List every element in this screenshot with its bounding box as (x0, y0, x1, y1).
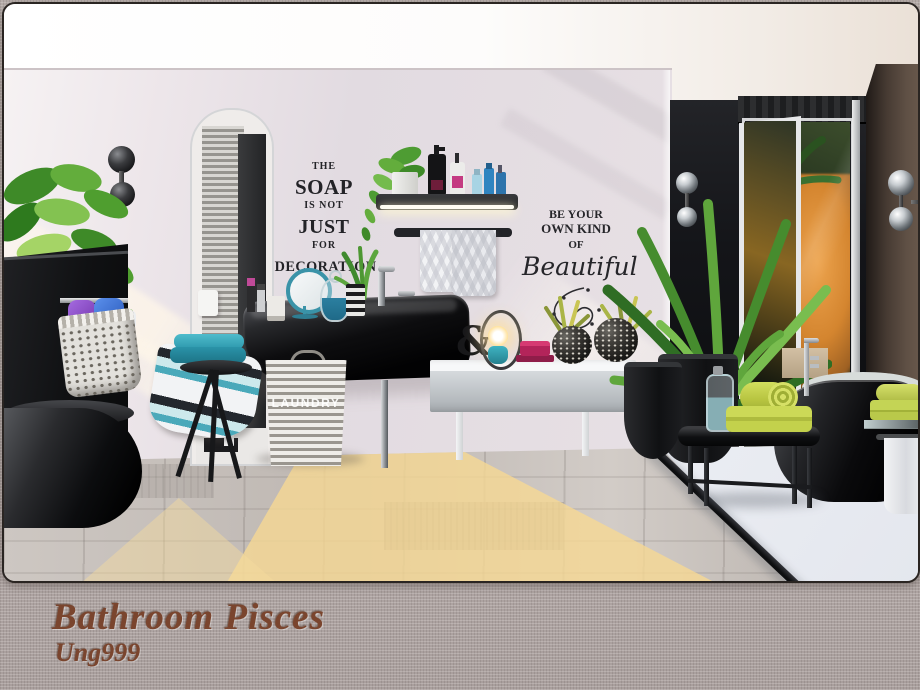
lime-towel-right (870, 400, 920, 420)
black-toilet (4, 408, 142, 528)
cosmetic-bottle (484, 168, 494, 196)
bottle-nozzle (438, 147, 445, 151)
cosmetic-jar (267, 296, 285, 321)
bottle-cap (713, 366, 723, 375)
sink-faucet-handle (398, 291, 415, 296)
bench-leg (792, 444, 797, 504)
pink-soap-tray (516, 355, 554, 362)
tub-faucet-knob (810, 364, 819, 368)
scene-photo: THE SOAP IS NOT JUST FOR DECORATION (2, 2, 920, 583)
spray-bottle (247, 282, 255, 312)
cabinet-leg (582, 412, 589, 456)
laundry-basket-label: LAUNDRY (260, 396, 352, 410)
bench-leg (688, 444, 693, 494)
wall-shelf (376, 194, 518, 210)
lantern-lamp-bulb (487, 325, 509, 347)
caption-author: Ung999 (55, 638, 140, 668)
shelf-led-strip (380, 205, 514, 209)
folded-lime-towel (726, 406, 812, 432)
spray-bottle (257, 288, 265, 312)
lantern-lamp-base (488, 346, 508, 364)
black-planter (624, 362, 682, 459)
mirror-base (292, 314, 318, 319)
cabinet-leg (456, 412, 463, 460)
bottle-cap (486, 163, 492, 169)
tub-faucet-knob (810, 356, 819, 360)
laundry-basket: LAUNDRY (260, 360, 352, 466)
glass-shelf (864, 420, 920, 429)
sconce-chrome-left (676, 172, 698, 194)
cosmetic-bottle (496, 172, 506, 196)
hanging-towel (452, 230, 496, 296)
sconce-chrome-right (888, 170, 914, 196)
wall-soap-dispenser (198, 290, 218, 316)
speckled-vase (552, 326, 592, 364)
bottle-pump (455, 153, 459, 163)
drain-pipe (381, 380, 388, 468)
tub-faucet (804, 338, 809, 396)
white-hand-towel (884, 438, 920, 514)
sconce-chrome-right (889, 207, 913, 231)
hanging-woven-basket (57, 308, 142, 399)
spray-cap (247, 278, 255, 286)
cosmetic-bottle (472, 174, 482, 196)
promo-card: THE SOAP IS NOT JUST FOR DECORATION (0, 0, 920, 690)
shelf-plant-pot (392, 172, 418, 196)
pink-soap-box (520, 341, 550, 356)
bottle-label (452, 176, 463, 188)
tub-faucet-spout (804, 338, 819, 343)
spray-cap (257, 284, 265, 290)
caption-title: Bathroom Pisces (52, 596, 325, 639)
bench-leg (807, 448, 812, 508)
bottle-label (431, 180, 443, 190)
bench-leg (704, 448, 709, 506)
sconce-arm (911, 200, 920, 204)
bottle-cap (474, 169, 480, 175)
bottle-pump (498, 165, 502, 173)
bench-shadow (690, 492, 822, 508)
striped-vase (346, 284, 365, 316)
